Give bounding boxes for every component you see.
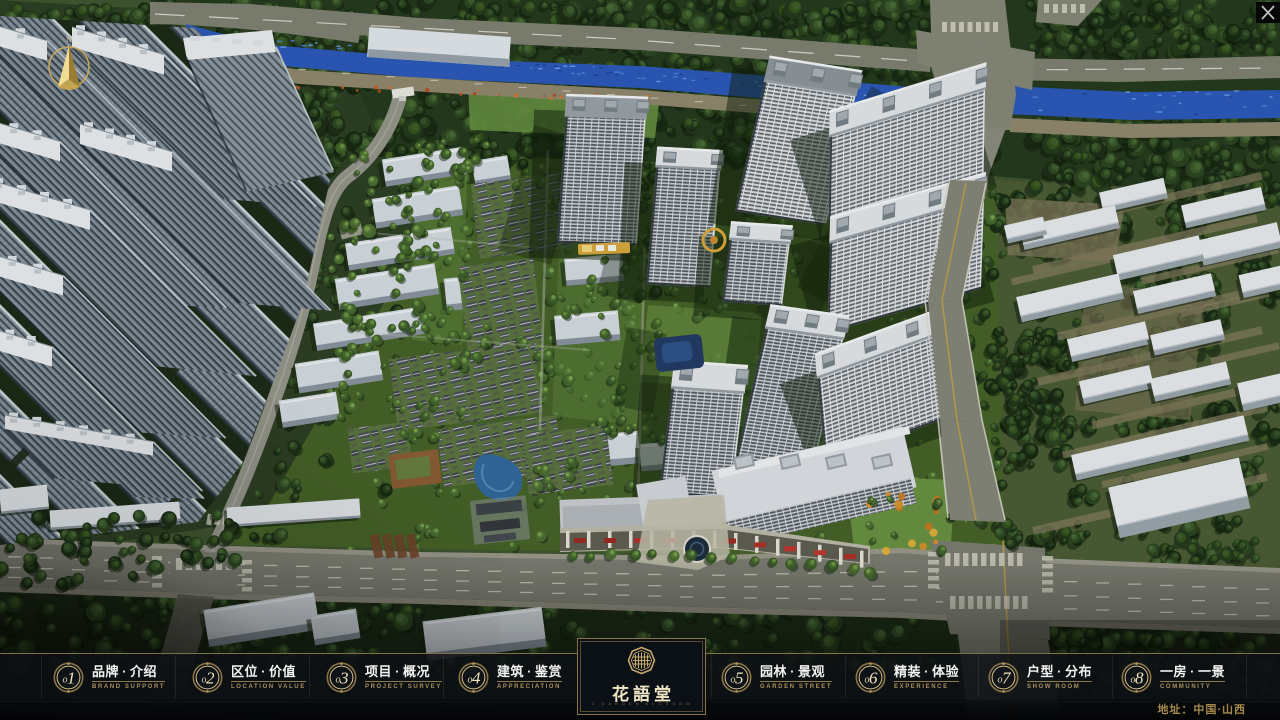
svg-text:N: N xyxy=(66,36,71,44)
svg-text:6: 6 xyxy=(869,668,878,687)
svg-text:4: 4 xyxy=(472,668,481,687)
svg-text:5: 5 xyxy=(735,668,744,687)
svg-text:2: 2 xyxy=(206,668,215,687)
svg-text:1: 1 xyxy=(67,668,76,687)
svg-text:8: 8 xyxy=(1135,668,1144,687)
svg-text:3: 3 xyxy=(339,668,349,687)
